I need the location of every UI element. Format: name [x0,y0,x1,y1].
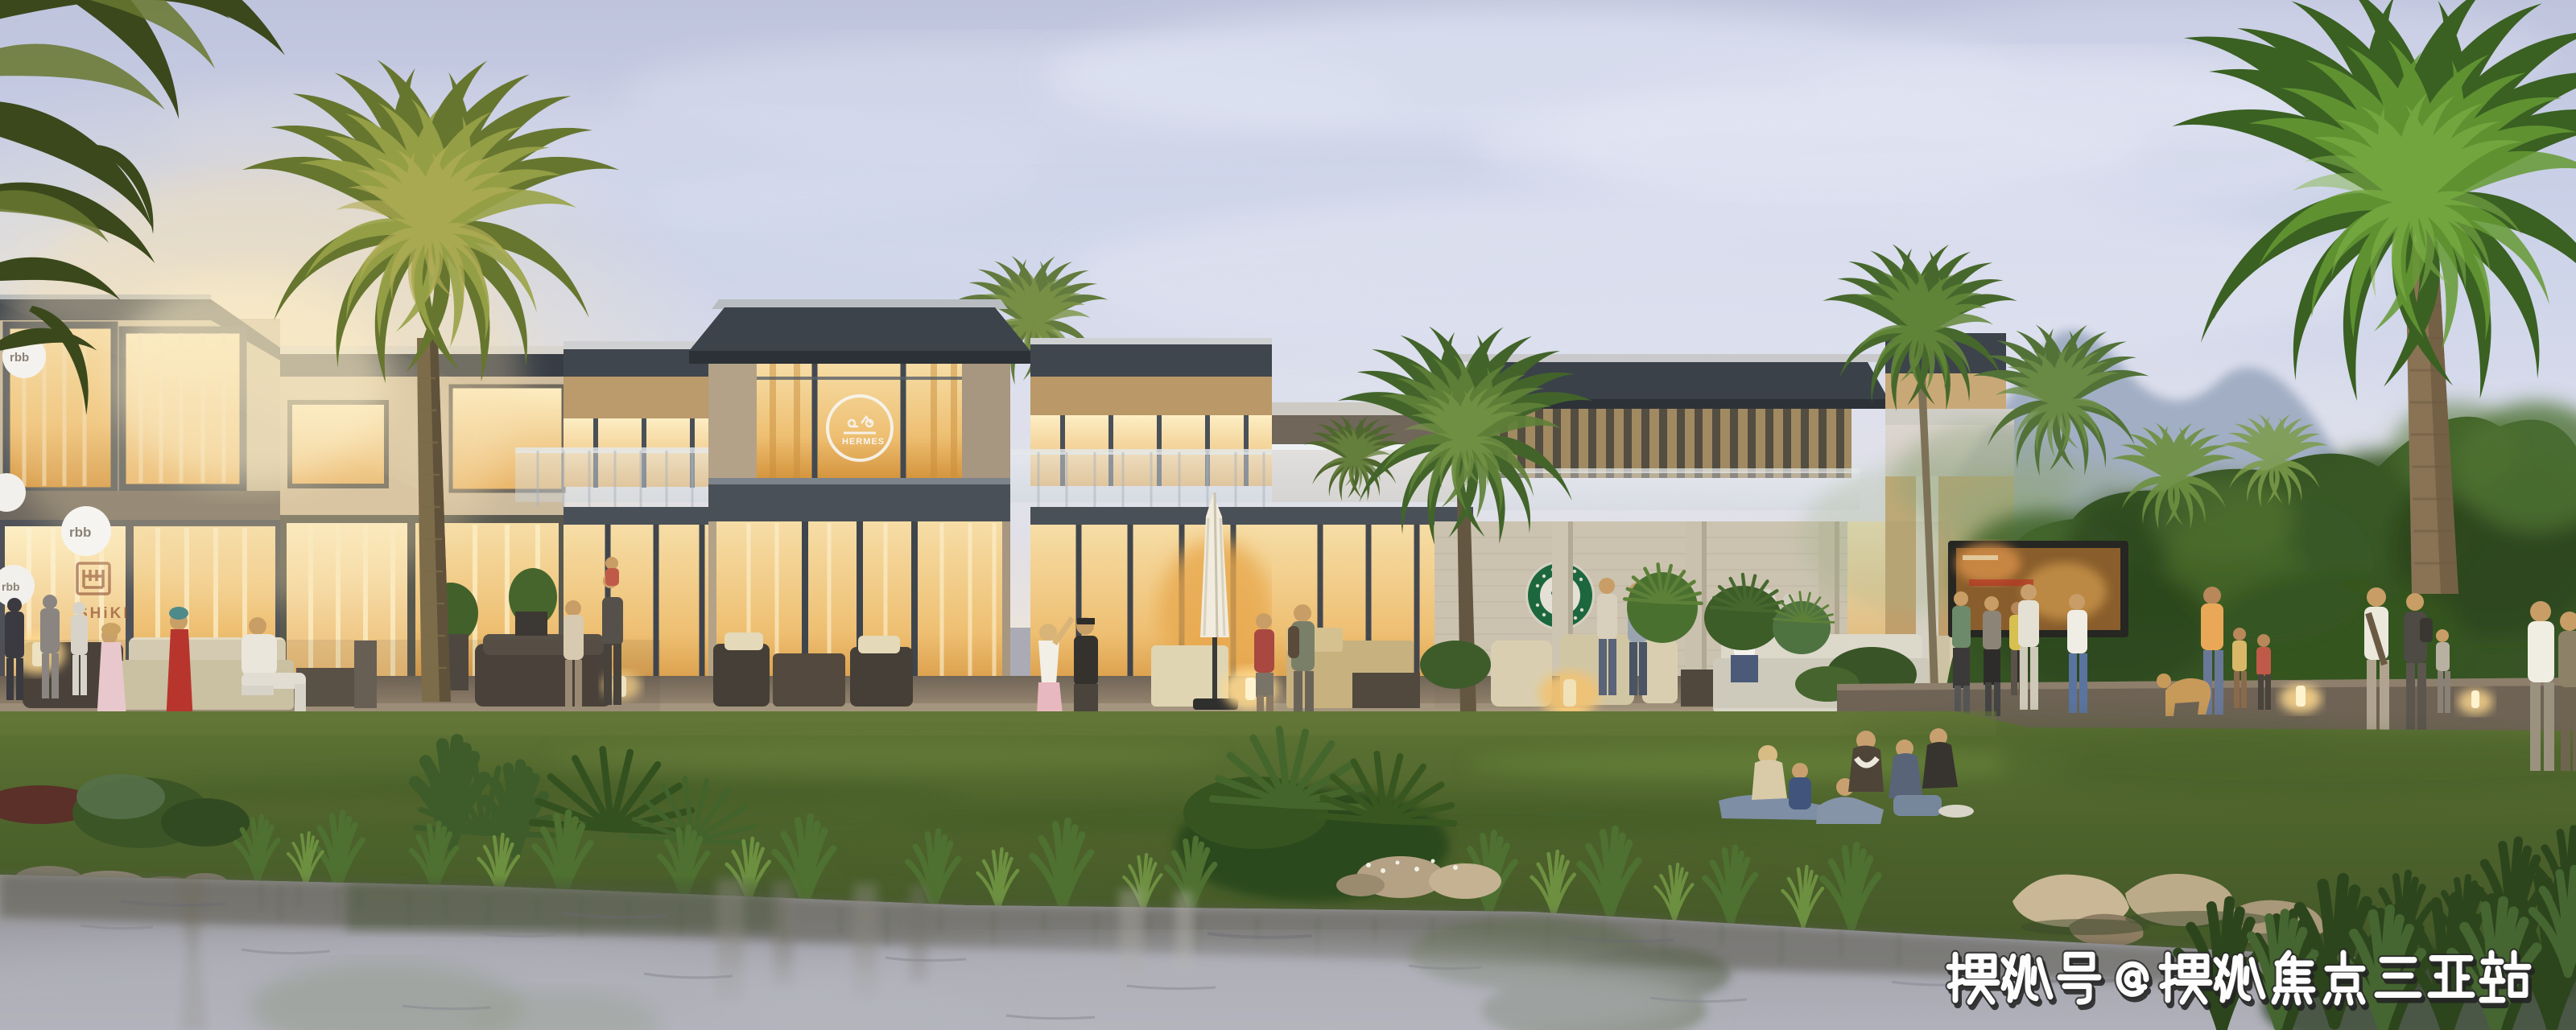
svg-text:rbb: rbb [10,351,29,365]
svg-text:HERMES: HERMES [842,437,885,447]
svg-text:rbb: rbb [2,580,20,593]
svg-text:rbb: rbb [69,525,91,540]
